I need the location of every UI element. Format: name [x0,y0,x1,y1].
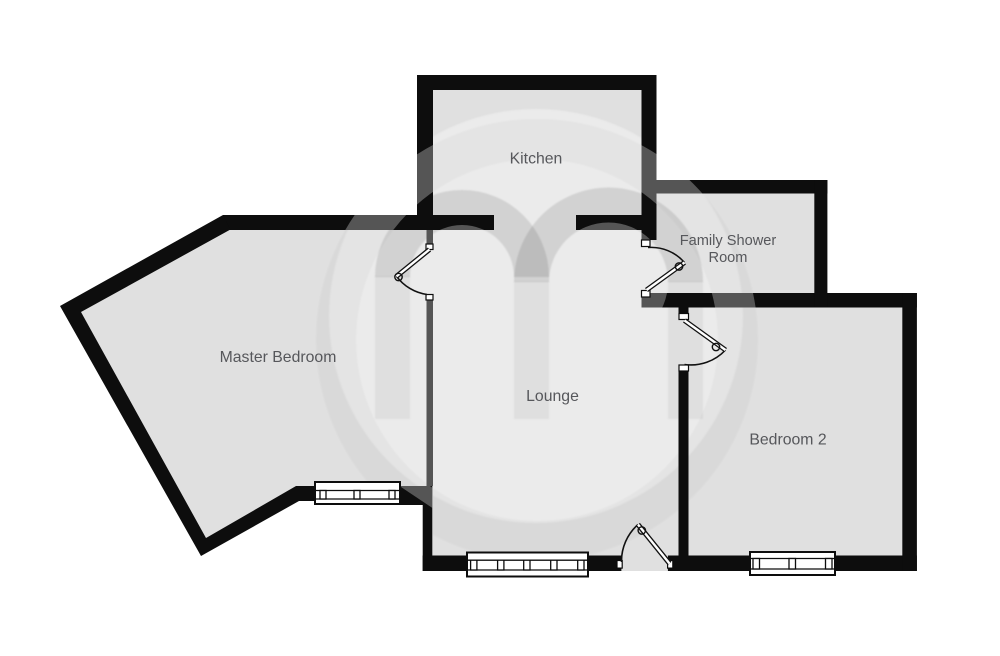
svg-text:Room: Room [709,250,748,266]
svg-text:Master Bedroom: Master Bedroom [220,349,337,366]
svg-text:Lounge: Lounge [526,388,579,405]
svg-text:Kitchen: Kitchen [510,151,563,168]
svg-text:Bedroom 2: Bedroom 2 [749,432,826,449]
svg-text:Family Shower: Family Shower [680,233,777,249]
